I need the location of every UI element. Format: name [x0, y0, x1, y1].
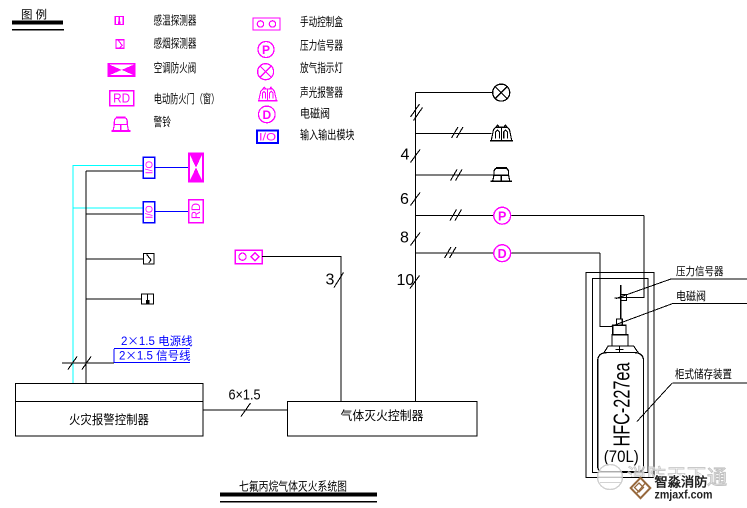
svg-text:I/O: I/O	[259, 132, 277, 144]
svg-text:压力信号器: 压力信号器	[676, 263, 724, 279]
svg-text:输入输出模块: 输入输出模块	[300, 126, 355, 143]
svg-text:6: 6	[400, 185, 409, 209]
svg-text:zmjaxf.com: zmjaxf.com	[655, 486, 713, 503]
svg-text:感温探测器: 感温探测器	[154, 11, 197, 28]
svg-text:手动控制盒: 手动控制盒	[300, 13, 343, 30]
svg-text:RD: RD	[189, 203, 203, 219]
svg-text:I/O: I/O	[145, 161, 156, 175]
svg-text:声光报警器: 声光报警器	[300, 84, 343, 101]
svg-text:RD: RD	[113, 91, 130, 106]
svg-text:2×1.5 信号线: 2×1.5 信号线	[119, 348, 191, 364]
svg-text:感烟探测器: 感烟探测器	[154, 35, 197, 52]
svg-text:压力信号器: 压力信号器	[300, 37, 343, 54]
svg-text:6×1.5: 6×1.5	[229, 387, 261, 404]
svg-text:电磁阀: 电磁阀	[300, 105, 330, 122]
svg-text:七氟丙烷气体灭火系统图: 七氟丙烷气体灭火系统图	[239, 478, 347, 495]
svg-text:8: 8	[400, 224, 409, 248]
svg-text:3: 3	[326, 272, 335, 289]
svg-text:4: 4	[401, 141, 410, 165]
svg-text:图例: 图例	[21, 7, 50, 23]
svg-text:火灾报警控制器: 火灾报警控制器	[69, 409, 149, 428]
svg-text:HFC-227ea: HFC-227ea	[609, 362, 635, 446]
svg-text:电动防火门（窗）: 电动防火门（窗）	[154, 90, 220, 107]
svg-text:柜式储存装置: 柜式储存装置	[675, 366, 732, 382]
svg-text:电磁阀: 电磁阀	[676, 288, 706, 304]
svg-text:10: 10	[397, 266, 415, 290]
svg-text:P: P	[498, 209, 506, 223]
svg-text:警铃: 警铃	[154, 113, 172, 130]
svg-text:D: D	[262, 108, 271, 122]
svg-text:I/O: I/O	[145, 205, 156, 219]
svg-text:放气指示灯: 放气指示灯	[300, 59, 343, 76]
svg-text:P: P	[262, 43, 270, 57]
svg-text:气体灭火控制器: 气体灭火控制器	[341, 405, 424, 424]
svg-text:D: D	[498, 247, 507, 261]
svg-text:空调防火阀: 空调防火阀	[154, 59, 197, 76]
